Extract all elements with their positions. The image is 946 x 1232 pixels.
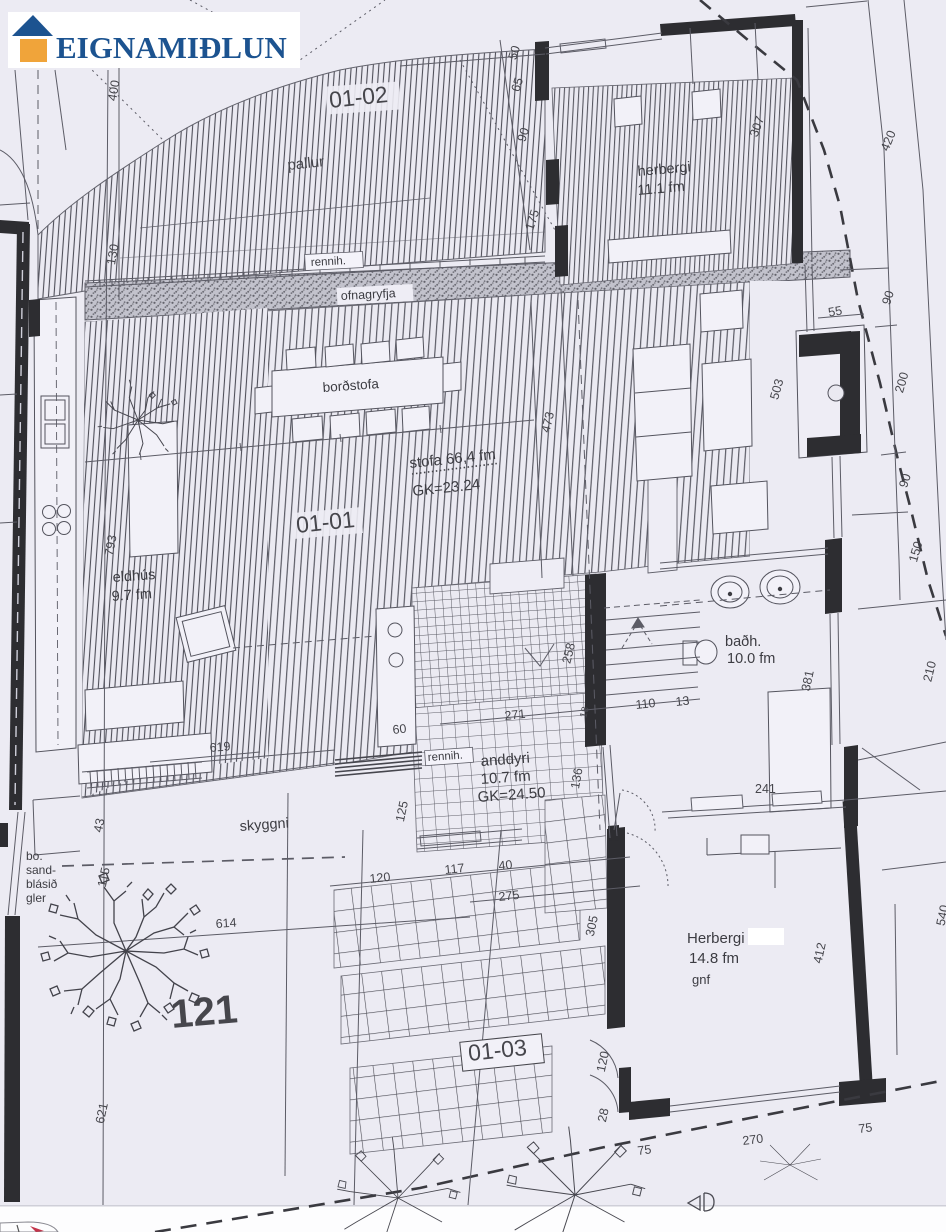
svg-text:43: 43: [91, 817, 108, 834]
svg-text:121: 121: [169, 987, 239, 1037]
svg-text:40: 40: [498, 858, 513, 873]
svg-text:60: 60: [392, 722, 407, 737]
svg-text:120: 120: [369, 870, 391, 886]
svg-text:ofnagryfja: ofnagryfja: [340, 286, 396, 303]
svg-text:14.8 fm: 14.8 fm: [689, 950, 739, 967]
svg-text:28: 28: [595, 1107, 612, 1124]
svg-text:275: 275: [498, 888, 520, 904]
svg-text:sand-: sand-: [26, 863, 56, 877]
svg-text:rennih.: rennih.: [427, 750, 463, 764]
svg-text:241: 241: [755, 782, 776, 796]
svg-text:9.7 fm: 9.7 fm: [111, 586, 152, 605]
svg-text:gnf: gnf: [692, 972, 710, 987]
svg-text:614: 614: [215, 916, 237, 931]
svg-text:blásið: blásið: [26, 877, 58, 891]
svg-text:10.0 fm: 10.0 fm: [727, 651, 775, 667]
svg-text:gler: gler: [26, 891, 46, 905]
svg-text:110: 110: [635, 696, 656, 712]
svg-text:rennih.: rennih.: [311, 255, 347, 269]
svg-text:baðh.: baðh.: [725, 634, 761, 650]
svg-text:619: 619: [209, 739, 231, 755]
svg-text:skyggni: skyggni: [239, 816, 289, 835]
svg-text:271: 271: [504, 707, 526, 723]
svg-text:anddyri: anddyri: [480, 750, 530, 770]
svg-text:Herbergi: Herbergi: [687, 930, 745, 947]
svg-text:117: 117: [444, 861, 465, 877]
svg-text:270: 270: [742, 1132, 764, 1148]
svg-text:55: 55: [827, 303, 843, 319]
svg-text:75: 75: [858, 1120, 874, 1136]
svg-text:EIGNAMIÐLUN: EIGNAMIÐLUN: [56, 30, 287, 65]
svg-text:75: 75: [637, 1142, 653, 1158]
svg-text:eldhús: eldhús: [112, 567, 156, 586]
svg-text:bo.: bo.: [26, 849, 43, 863]
svg-text:13: 13: [675, 694, 690, 709]
